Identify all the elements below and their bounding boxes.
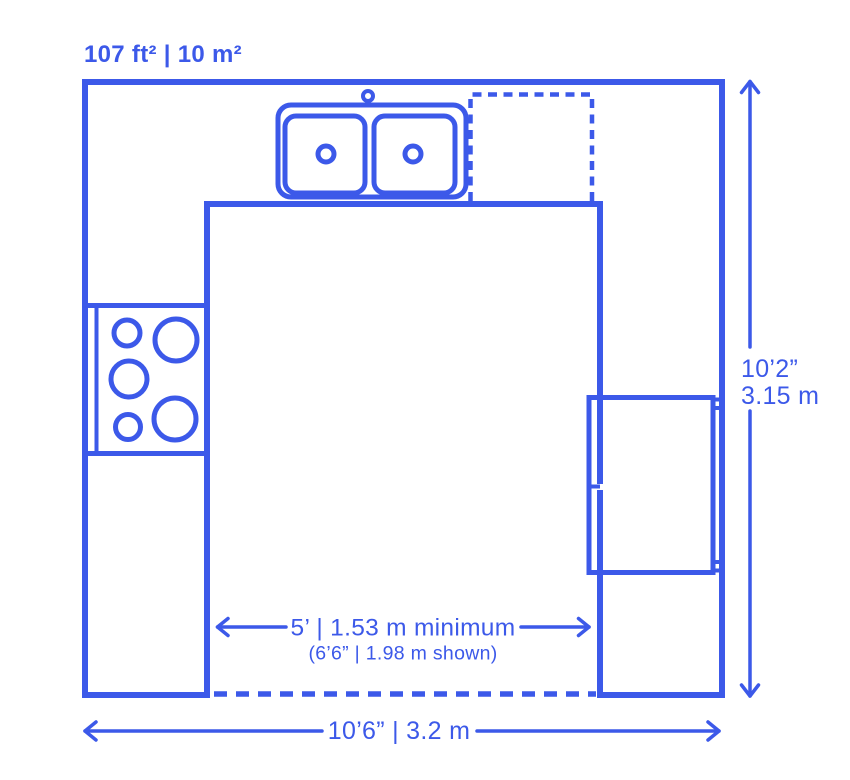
burner-icon [155,319,197,361]
drain-right-icon [405,146,421,162]
refrigerator-body [589,398,713,573]
height-imperial-label: 10’2” [741,355,798,383]
dimension-overall-height: 10’2” 3.15 m [741,82,819,697]
dimension-overall-width: 10’6” | 3.2 m [85,717,719,745]
floor-plan-outline [85,82,722,697]
sink-icon [278,91,466,197]
dishwasher-icon [471,95,593,202]
refrigerator-icon [589,398,720,573]
burner-icon [114,320,140,346]
faucet-icon [363,91,373,101]
sink-basin-right [374,116,455,193]
area-label: 107 ft² | 10 m² [84,41,242,68]
aisle-shown-label: (6’6” | 1.98 m shown) [308,643,497,665]
kitchen-floor-plan-diagram: 107 ft² | 10 m² [0,0,850,780]
sink-basin-left [285,116,365,193]
aisle-minimum-label: 5’ | 1.53 m minimum [291,615,516,642]
drain-left-icon [318,146,334,162]
cooktop-icon [87,305,204,454]
burner-icon [111,361,147,397]
burner-icon [116,415,141,440]
width-label: 10’6” | 3.2 m [328,717,470,745]
outer-wall [85,82,722,695]
dimension-aisle-clearance: 5’ | 1.53 m minimum (6’6” | 1.98 m shown… [218,615,590,665]
height-metric-label: 3.15 m [741,382,819,410]
burner-icon [154,398,196,440]
